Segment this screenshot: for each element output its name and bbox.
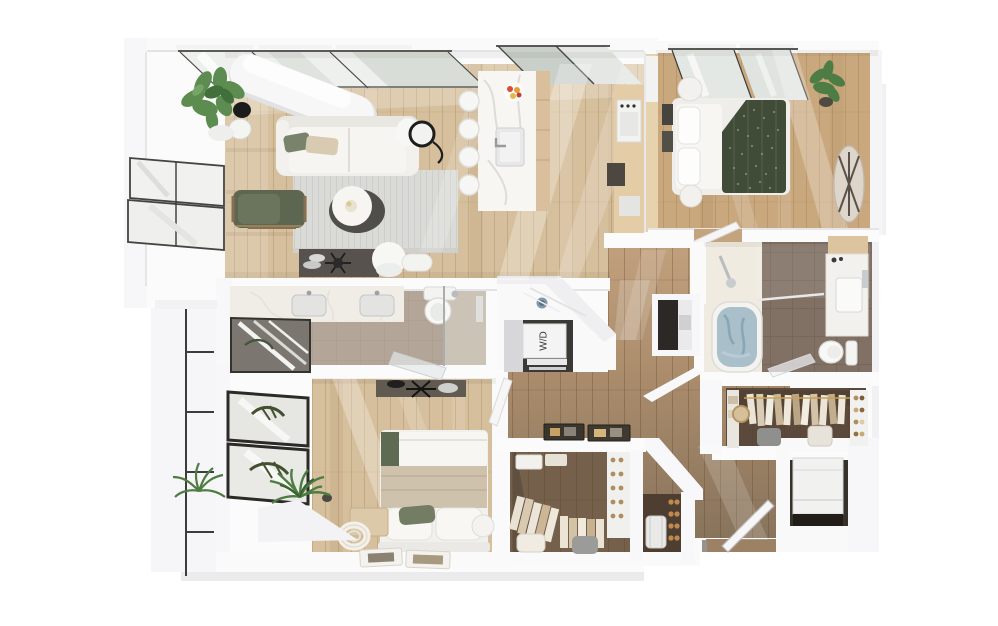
svg-text:W/D: W/D (539, 331, 550, 350)
